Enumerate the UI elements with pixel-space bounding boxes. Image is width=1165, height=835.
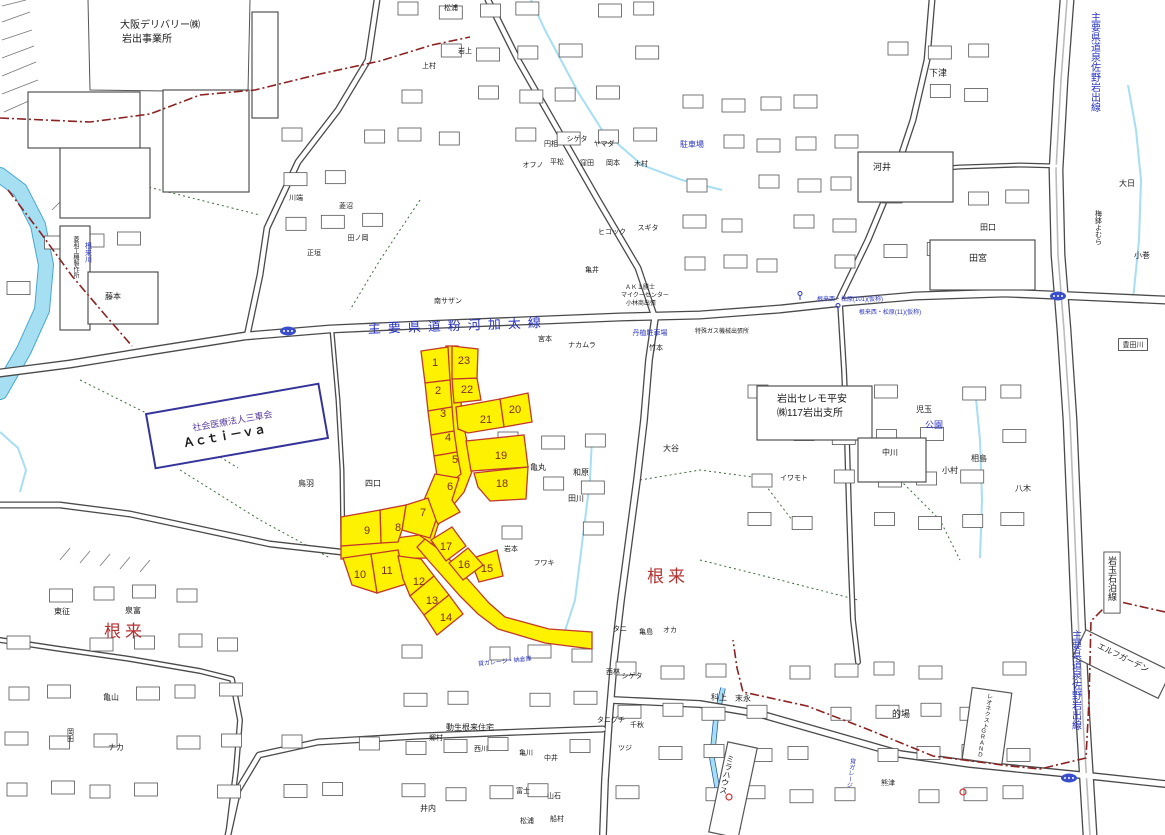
map-label-text: 宮本 [538, 334, 552, 343]
map-label-text: 岩玉石泊線 [1107, 555, 1117, 601]
parcel-number-19: 19 [495, 450, 507, 462]
road-number-dot [1061, 295, 1063, 297]
parcel-number-6: 6 [447, 481, 453, 493]
building [659, 747, 682, 760]
building [702, 707, 725, 720]
map-label-text: 大阪デリバリー㈱ [120, 18, 200, 31]
parcel-number-23: 23 [458, 355, 470, 367]
building [834, 470, 854, 483]
building [748, 513, 771, 526]
map-label-text: フワキ [534, 559, 555, 567]
map-label: シゲタ [567, 134, 588, 143]
building [794, 95, 817, 108]
map-label-text: 根来 [104, 622, 146, 641]
map-label: 公園 [925, 420, 943, 430]
road-number-dot [287, 330, 289, 332]
building [528, 645, 551, 658]
map-label: 岩玉石泊線 [1104, 552, 1120, 613]
map-label: 河井 [873, 161, 891, 172]
map-label: 根来西・松原(101)(仮称) [817, 295, 883, 303]
map-label-text: 四口 [365, 479, 381, 488]
parcel-number-14: 14 [440, 612, 452, 624]
building [530, 693, 550, 706]
parcel-number-13: 13 [426, 595, 438, 607]
building [50, 589, 73, 602]
building [878, 749, 898, 762]
map-label: 中川 [882, 447, 898, 457]
map-label-text: シゲタ [622, 671, 643, 680]
map-label-text: 松浦 [520, 816, 534, 825]
building [284, 785, 307, 798]
map-label-text: ㈱117岩出支所 [777, 406, 843, 419]
building [969, 192, 989, 205]
map-label: 郷村 [429, 733, 443, 742]
map-label-text: 中井 [544, 753, 558, 762]
map-label: 富士 [516, 786, 530, 795]
building [398, 128, 421, 141]
building [919, 666, 942, 679]
map-label: 円相 [544, 139, 558, 148]
building [363, 213, 383, 226]
map-label: 西林 [606, 667, 620, 676]
map-label: 児玉 [916, 405, 932, 414]
building [542, 436, 565, 449]
building [583, 522, 603, 535]
building [518, 46, 538, 59]
building [439, 132, 459, 145]
parcel-number-11: 11 [381, 565, 392, 577]
map-label-text: 亀山 [103, 692, 119, 702]
map-label-text: 亀井 [585, 265, 599, 274]
building [133, 585, 156, 598]
building [683, 215, 706, 228]
building [177, 589, 197, 602]
building [722, 219, 742, 232]
map-label: 主要県道泉佐野岩出線 [1070, 630, 1082, 730]
building [616, 786, 639, 799]
map-label-text: 末永 [735, 693, 751, 703]
map-label-text: オカ [663, 626, 677, 634]
map-label-text: 田ノ岡 [348, 234, 369, 242]
building [919, 790, 939, 803]
map-label-text: 主要県道泉佐野岩出線 [1070, 630, 1082, 730]
map-label: 和原 [573, 468, 589, 477]
map-label: 動生根来住宅 [446, 722, 494, 732]
map-label: 根来川 [85, 241, 93, 263]
building [479, 86, 499, 99]
map-label: ヒコック [598, 228, 626, 236]
map-label: 特殊ガス機械出張所 [695, 327, 749, 335]
building [448, 691, 468, 704]
building [282, 735, 302, 748]
building [788, 747, 808, 760]
map-label-text: マイクーセンター [621, 291, 669, 299]
map-label-text: 大谷 [663, 443, 679, 453]
map-label: 西川 [474, 745, 488, 753]
building [747, 705, 767, 718]
map-label-text: 河井 [873, 161, 891, 172]
building [516, 2, 539, 15]
building [516, 128, 536, 141]
map-label: 丹植駐車場 [633, 328, 668, 337]
map-label-text: タニ [613, 624, 627, 633]
road-number-dot [1068, 777, 1070, 779]
map-label: 鳥羽 [298, 478, 314, 488]
building [135, 783, 158, 796]
building [928, 46, 951, 59]
map-label-text: ナカムラ [568, 341, 596, 349]
parcel-number-8: 8 [395, 522, 401, 534]
map-label: 岩出事業所 [122, 32, 172, 45]
building [490, 786, 513, 799]
road-number-dot [1072, 777, 1074, 779]
map-label: 松浦 [520, 816, 534, 825]
map-label: ＡＫ１勝士 [625, 283, 655, 291]
building [919, 517, 942, 530]
cadastral-map-viewport[interactable]: 1234567891011121314151617181920212223大阪デ… [0, 0, 1165, 835]
building [220, 683, 243, 696]
building [446, 788, 466, 801]
building [481, 4, 501, 17]
map-label: 梅鉢よむら [1095, 209, 1103, 245]
building-large [252, 12, 278, 118]
map-label-text: 児玉 [916, 405, 932, 414]
building [477, 48, 500, 61]
building [969, 44, 989, 57]
building [874, 662, 894, 675]
map-label: 的場 [892, 708, 910, 719]
building [502, 526, 522, 539]
building [528, 784, 548, 797]
map-label: 岡本 [606, 158, 620, 167]
building [559, 44, 582, 57]
building [685, 257, 705, 270]
map-label-text: 東征 [54, 606, 70, 616]
map-label-text: 熊津 [881, 778, 895, 787]
map-label-text: ヤマダ [594, 139, 615, 148]
building [137, 687, 160, 700]
map-label-text: 根来 [647, 567, 689, 586]
building [921, 703, 941, 716]
building [831, 177, 851, 190]
map-label-text: 根来西・松原(11)(仮称) [859, 308, 921, 316]
building [398, 2, 418, 15]
map-label: 豊田川 [1119, 339, 1148, 351]
map-label-text: 川端 [289, 193, 303, 202]
building [544, 477, 564, 490]
building [286, 217, 306, 230]
map-label-text: 菱和工機製作所 [72, 235, 79, 279]
map-label: 亀山 [103, 692, 119, 702]
building [94, 587, 114, 600]
map-label-text: 岩出セレモ平安 [777, 392, 847, 405]
map-label: 根来 [104, 622, 146, 641]
parcel-number-21: 21 [480, 414, 492, 426]
building-large [930, 240, 1035, 290]
map-label: タニグチ [597, 715, 625, 724]
building [402, 90, 422, 103]
map-label: ナカムラ [568, 341, 596, 349]
parcel-number-9: 9 [364, 525, 370, 537]
map-label: オカ [663, 626, 677, 634]
map-label-text: 岩本 [504, 544, 518, 553]
building [5, 732, 28, 745]
building [835, 788, 855, 801]
map-label-text: 亀丸 [530, 462, 546, 472]
map-label-text: 菱沼 [339, 201, 353, 210]
parcel-number-1: 1 [432, 357, 438, 369]
map-label-text: 山石 [547, 791, 561, 800]
map-label-text: 千秋 [630, 720, 644, 729]
map-label: ツジ [618, 745, 632, 752]
map-label-text: 駐車場 [680, 139, 704, 149]
map-label-text: 西川 [474, 745, 488, 753]
map-label: 東征 [54, 606, 70, 616]
map-label-text: 岡田 [67, 728, 75, 743]
building [761, 97, 781, 110]
map-label-text: 丹植駐車場 [633, 328, 668, 337]
map-label: 中井 [544, 753, 558, 762]
map-label: 科上 [711, 692, 727, 702]
map-label-text: 大日 [1119, 178, 1135, 188]
parcel-number-4: 4 [445, 432, 451, 444]
map-label: 駐車場 [680, 139, 704, 149]
map-label-text: 窪田 [580, 158, 594, 167]
map-label: 岩出セレモ平安 [777, 392, 847, 405]
building [963, 515, 983, 528]
building [833, 219, 856, 232]
parcel-9[interactable] [341, 510, 381, 546]
map-label-text: 八木 [1015, 483, 1031, 493]
map-label-text: 小巻 [1134, 250, 1150, 260]
map-label: 末永 [735, 693, 751, 703]
building [555, 88, 575, 101]
map-label-text: ヒコック [598, 228, 626, 236]
map-label: 相島 [971, 453, 987, 463]
map-label-text: イワモト [780, 474, 808, 482]
road-number-dot [1064, 777, 1066, 779]
road-number-dot [283, 330, 285, 332]
map-label: 木村 [634, 159, 648, 168]
map-label: オフノ [523, 161, 544, 169]
parcel-number-17: 17 [440, 541, 452, 553]
building [835, 664, 858, 677]
map-label: 岩上 [458, 46, 472, 55]
map-label-text: 小村 [942, 465, 958, 475]
map-label: 船村 [550, 814, 564, 823]
building [1001, 385, 1021, 398]
map-label-text: 岩上 [458, 46, 472, 55]
map-label: フワキ [534, 559, 555, 567]
map-label-text: 中川 [882, 447, 898, 457]
building [930, 85, 950, 98]
map-label: 藤本 [105, 291, 121, 301]
map-label: 小林商出張 [626, 299, 656, 307]
map-label-text: 船村 [550, 814, 564, 823]
map-label-text: 梅鉢よむら [1095, 209, 1103, 245]
building [323, 783, 343, 796]
building [90, 785, 110, 798]
map-label: 八木 [1015, 483, 1031, 493]
building [963, 387, 986, 400]
building [404, 693, 427, 706]
map-label-text: ナカ [108, 743, 124, 752]
map-label: 上村 [422, 61, 436, 70]
building [365, 130, 385, 143]
building [222, 734, 242, 747]
building [7, 636, 30, 649]
parcel-number-7: 7 [420, 507, 426, 519]
building [874, 513, 894, 526]
building [52, 781, 75, 794]
map-label-text: 根来西・松原(101)(仮称) [817, 295, 883, 303]
map-label-text: 藤本 [105, 291, 121, 301]
building-large [60, 148, 150, 218]
map-label: 竹本 [649, 343, 663, 352]
building [282, 128, 302, 141]
map-label: 千秋 [630, 720, 644, 729]
building [7, 783, 27, 796]
building [1006, 190, 1029, 203]
building [687, 179, 707, 192]
building-large [88, 272, 158, 324]
map-label: 亀井 [585, 265, 599, 274]
building [796, 137, 816, 150]
map-label-text: 小林商出張 [626, 299, 656, 307]
map-label-text: 下津 [929, 68, 947, 78]
map-label-text: 公園 [925, 420, 943, 430]
map-label-text: 郷村 [429, 733, 443, 742]
building [759, 175, 779, 188]
building [218, 638, 238, 651]
building [402, 645, 422, 658]
map-label-text: 竹本 [649, 343, 663, 352]
map-label-text: 田宮 [969, 252, 987, 263]
road-number-dot [1057, 295, 1059, 297]
building [572, 649, 592, 662]
map-label: スギタ [638, 223, 659, 232]
building [722, 99, 745, 112]
building [634, 128, 657, 141]
building [831, 707, 851, 720]
building-large [28, 92, 140, 148]
building [175, 685, 195, 698]
building [704, 745, 724, 758]
building-large [858, 438, 926, 482]
building [179, 634, 202, 647]
building [402, 784, 425, 797]
map-label: 小村 [942, 465, 958, 475]
map-label-text: 田口 [980, 223, 996, 232]
map-label: 田宮 [969, 252, 987, 263]
map-canvas[interactable]: 1234567891011121314151617181920212223大阪デ… [0, 0, 1165, 835]
map-label: 主要県道泉佐野岩出線 [1089, 12, 1101, 112]
map-label: 根来 [647, 567, 689, 586]
road-number-dot [1053, 295, 1055, 297]
map-label: ヤマダ [594, 139, 615, 148]
building [177, 736, 200, 749]
map-label: 田ノ岡 [348, 234, 369, 242]
building [964, 788, 987, 801]
map-label: 岩本 [504, 544, 518, 553]
building [585, 434, 605, 447]
map-label: 泉富 [125, 605, 141, 615]
map-label: 四口 [365, 479, 381, 488]
map-label-text: 松浦 [444, 3, 458, 12]
map-label-text: ツジ [618, 745, 632, 752]
map-label: 川端 [289, 193, 303, 202]
building [284, 173, 307, 186]
building [1003, 786, 1023, 799]
map-label-text: 井内 [420, 803, 436, 813]
building [790, 790, 813, 803]
building [724, 255, 747, 268]
building-large [163, 90, 249, 192]
map-label-text: 富士 [516, 786, 530, 795]
building [7, 282, 30, 295]
road-number-dot [291, 330, 293, 332]
map-label-text: 和原 [573, 468, 589, 477]
map-label-text: 上村 [422, 61, 436, 70]
building [48, 685, 71, 698]
map-label: 小巻 [1134, 250, 1150, 260]
building [661, 666, 684, 679]
map-label-text: 正垣 [307, 248, 321, 257]
map-label-text: 泉富 [125, 605, 141, 615]
building [596, 86, 619, 99]
map-label-text: 南サザン [434, 296, 462, 305]
map-label-text: 科上 [711, 692, 727, 702]
parcel-number-2: 2 [435, 385, 441, 397]
building [835, 255, 855, 268]
building [752, 474, 772, 487]
building [1003, 662, 1026, 675]
building [724, 135, 744, 148]
map-label-text: タニグチ [597, 715, 625, 724]
building [917, 747, 940, 760]
map-label: 山石 [547, 791, 561, 800]
map-label: 松浦 [444, 3, 458, 12]
parcel-number-15: 15 [481, 563, 493, 575]
map-label: 平松 [550, 157, 564, 166]
map-label: 亀川 [519, 748, 533, 757]
map-label: 正垣 [307, 248, 321, 257]
parcel-number-22: 22 [461, 384, 473, 396]
map-label-text: 動生根来住宅 [446, 722, 494, 732]
map-label: 亀丸 [530, 462, 546, 472]
building [574, 691, 597, 704]
map-label: 下津 [929, 68, 947, 78]
building [835, 135, 858, 148]
map-label: タニ [613, 624, 627, 633]
building [520, 90, 543, 103]
building [1007, 749, 1030, 762]
building [757, 259, 777, 272]
map-label-text: 西林 [606, 667, 620, 676]
building [218, 785, 241, 798]
building [1003, 430, 1026, 443]
map-label-text: 鳥羽 [298, 478, 314, 488]
building [798, 179, 821, 192]
map-label-text: 亀川 [519, 748, 533, 757]
map-label: イワモト [780, 474, 808, 482]
map-label: 亀島 [639, 627, 653, 636]
map-label-text: 主要県道泉佐野岩出線 [1089, 12, 1101, 112]
map-label-text: 平松 [550, 157, 564, 166]
map-label: 南サザン [434, 296, 462, 305]
map-label: ㈱117岩出支所 [777, 406, 843, 419]
building [570, 740, 590, 753]
